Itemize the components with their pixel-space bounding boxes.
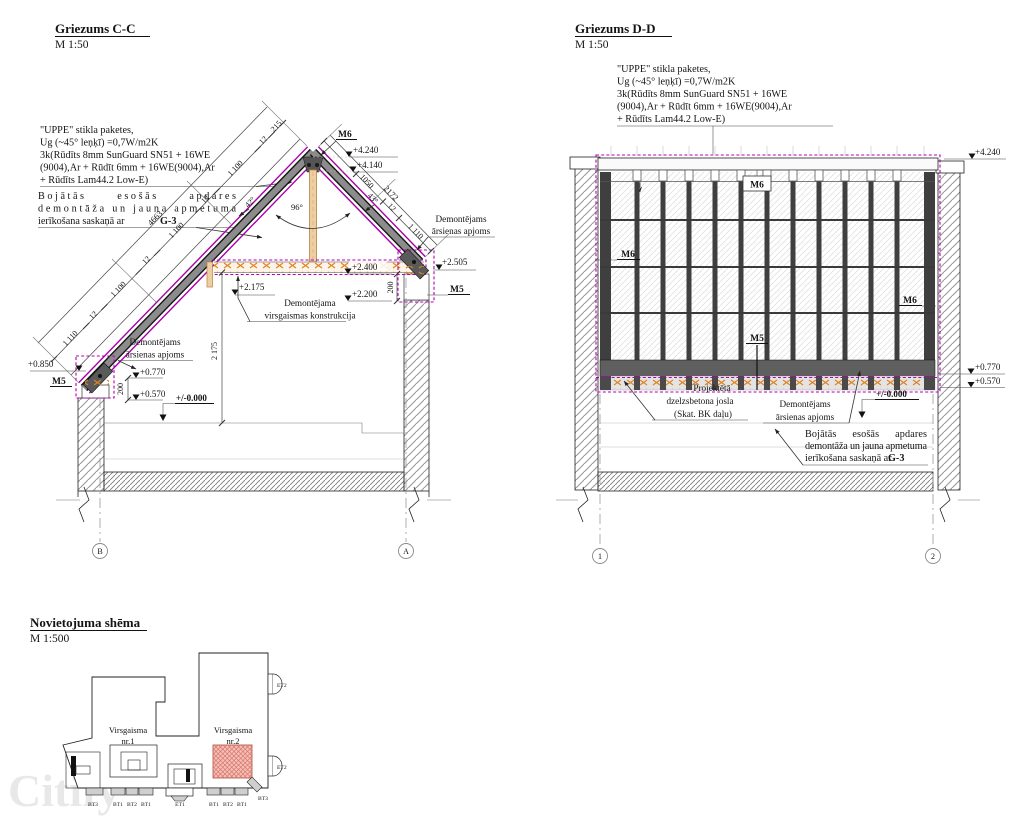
svg-text:215: 215 [269, 119, 284, 134]
repair-note: Bojātās esošās apdares demontāža un jaun… [38, 191, 262, 238]
m6-mark: M6 [903, 296, 917, 306]
svg-text:+4.240: +4.240 [975, 147, 1001, 157]
section-dd: Griezums D-D M 1:50 "UPPE" stikla pakete… [556, 21, 1006, 564]
svg-text:ierīkošana saskaņā ar: ierīkošana saskaņā ar [805, 453, 892, 464]
svg-text:ārsienas apjoms: ārsienas apjoms [432, 226, 491, 236]
svg-text:"UPPE" stikla paketes,: "UPPE" stikla paketes, [617, 64, 711, 75]
m5-mark: M5 [450, 285, 464, 295]
cc-walls [56, 274, 451, 522]
m6-mark: M6 [621, 250, 635, 260]
svg-text:nr.2: nr.2 [227, 736, 240, 746]
site-scale: M 1:500 [30, 633, 70, 645]
svg-text:+2.200: +2.200 [352, 289, 378, 299]
svg-text:(Skat. BK daļu): (Skat. BK daļu) [674, 409, 732, 420]
svg-text:1 100: 1 100 [109, 280, 128, 299]
grid-bubble-a: A [403, 547, 409, 556]
svg-text:ārsienas apjoms: ārsienas apjoms [126, 350, 185, 360]
svg-text:dzelzsbetona josla: dzelzsbetona josla [666, 396, 733, 406]
svg-text:ārsienas apjoms: ārsienas apjoms [776, 412, 835, 422]
svg-text:96°: 96° [291, 202, 303, 212]
svg-text:(9004),Ar + Rūdīt 6mm + 16WE(9: (9004),Ar + Rūdīt 6mm + 16WE(9004),Ar [617, 102, 792, 113]
m5-mark: M5 [750, 334, 764, 344]
svg-text:ET1: ET1 [175, 802, 185, 808]
section-scale: M 1:50 [575, 39, 609, 51]
svg-text:BT3: BT3 [258, 796, 268, 802]
svg-text:Projektētā: Projektētā [693, 383, 730, 393]
svg-text:Demontējams: Demontējams [129, 337, 180, 347]
svg-text:BT1: BT1 [113, 802, 123, 808]
skylight-2-highlight [213, 745, 252, 778]
svg-text:BT1: BT1 [209, 802, 219, 808]
svg-text:1 100: 1 100 [226, 159, 245, 178]
svg-text:+/-0.000: +/-0.000 [176, 393, 207, 403]
svg-text:3k(Rūdīts 8mm SunGuard SN51 +: 3k(Rūdīts 8mm SunGuard SN51 + 16WE [40, 150, 210, 161]
svg-text:BT2: BT2 [127, 802, 137, 808]
m6-mark: M6 [750, 181, 764, 191]
glass-spec-note: "UPPE" stikla paketes, Ug (~45° leņķī) =… [40, 125, 292, 187]
svg-text:Virsgaisma: Virsgaisma [109, 725, 147, 735]
drawing-sheet: Griezums C-C M 1:50 "UPPE" stikla pakete… [0, 0, 1024, 828]
svg-text:ET2: ET2 [277, 765, 287, 771]
svg-text:Ug (~45° leņķī) =0,7W/m2K: Ug (~45° leņķī) =0,7W/m2K [40, 138, 159, 149]
section-cc: Griezums C-C M 1:50 "UPPE" stikla pakete… [28, 21, 495, 559]
svg-text:Demontējams: Demontējams [435, 214, 486, 224]
svg-text:+2.505: +2.505 [442, 257, 468, 267]
svg-text:Bojātās esošās apdar: Bojātās esošās apdares [805, 429, 927, 440]
svg-text:+2.400: +2.400 [352, 262, 378, 272]
svg-text:+0.570: +0.570 [140, 389, 166, 399]
svg-text:12: 12 [140, 254, 152, 266]
svg-text:1 110: 1 110 [406, 222, 425, 241]
site-et2-markers: ET2 ET2 [268, 674, 287, 776]
svg-text:BT2: BT2 [223, 802, 233, 808]
svg-text:BT3: BT3 [88, 802, 98, 808]
section-title: Griezums C-C [55, 21, 136, 36]
svg-text:+4.140: +4.140 [357, 160, 383, 170]
svg-text:demontāža un jauna apmetuma: demontāža un jauna apmetuma [805, 441, 927, 452]
svg-text:(9004),Ar + Rūdīt 6mm + 16WE(9: (9004),Ar + Rūdīt 6mm + 16WE(9004),Ar [40, 163, 215, 174]
svg-text:Demontējams: Demontējams [779, 399, 830, 409]
cc-grid: B A [93, 278, 414, 559]
svg-text:12: 12 [87, 309, 99, 321]
svg-text:+4.240: +4.240 [353, 145, 379, 155]
svg-text:2 175: 2 175 [210, 342, 219, 360]
grid-bubble-b: B [97, 547, 102, 556]
site-title: Novietojuma shēma [30, 615, 141, 630]
svg-text:+/-0.000: +/-0.000 [876, 389, 907, 399]
svg-text:Virsgaisma: Virsgaisma [214, 725, 252, 735]
svg-text:+0.570: +0.570 [975, 376, 1001, 386]
svg-text:+0.770: +0.770 [140, 367, 166, 377]
section-title: Griezums D-D [575, 21, 656, 36]
svg-text:+0.850: +0.850 [28, 359, 54, 369]
svg-text:+ Rūdīts Lam44.2 Low-E): + Rūdīts Lam44.2 Low-E) [40, 175, 148, 186]
svg-text:ET2: ET2 [277, 683, 287, 689]
svg-text:+2.175: +2.175 [239, 282, 265, 292]
grid-bubble-2: 2 [931, 552, 935, 561]
svg-text:200: 200 [116, 383, 125, 395]
svg-text:virsgaismas konstrukcija: virsgaismas konstrukcija [264, 311, 355, 321]
svg-text:Ug (~45° leņķī) =0,7W/m2K: Ug (~45° leņķī) =0,7W/m2K [617, 77, 736, 88]
svg-text:ierīkošana saskaņā ar: ierīkošana saskaņā ar [38, 216, 125, 227]
cc-mid-labels: +2.400 +2.175 +2.200 200 Demontējama vir… [210, 261, 400, 426]
svg-text:+0.770: +0.770 [975, 362, 1001, 372]
svg-text:"UPPE" stikla paketes,: "UPPE" stikla paketes, [40, 125, 134, 136]
svg-text:nr.1: nr.1 [122, 736, 135, 746]
svg-text:12: 12 [257, 134, 269, 146]
cc-king-post [310, 170, 317, 262]
svg-text:1 110: 1 110 [61, 329, 80, 348]
svg-text:3k(Rūdīts 8mm SunGuard SN51 +: 3k(Rūdīts 8mm SunGuard SN51 + 16WE [617, 89, 787, 100]
svg-text:G-3: G-3 [888, 453, 904, 464]
section-scale: M 1:50 [55, 39, 89, 51]
svg-text:BT1: BT1 [141, 802, 151, 808]
m6-mark: M6 [338, 130, 352, 140]
cc-dim-chain-right: 1050 12 1 110 2172 43° [319, 124, 449, 256]
site-plan: Citify Novietojuma shēma M 1:500 Virsgai… [8, 615, 287, 816]
svg-text:demontāža un jauna apmetuma: demontāža un jauna apmetuma [38, 204, 236, 215]
svg-text:200: 200 [386, 282, 395, 294]
svg-text:+ Rūdīts Lam44.2 Low-E): + Rūdīts Lam44.2 Low-E) [617, 114, 725, 125]
svg-text:1050: 1050 [358, 172, 376, 190]
grid-bubble-1: 1 [598, 552, 602, 561]
m5-mark: M5 [52, 377, 66, 387]
svg-text:BT1: BT1 [237, 802, 247, 808]
svg-text:Demontējama: Demontējama [284, 298, 336, 308]
site-footprint: Virsgaisma nr.1 Virsgaisma nr.2 [63, 653, 268, 788]
